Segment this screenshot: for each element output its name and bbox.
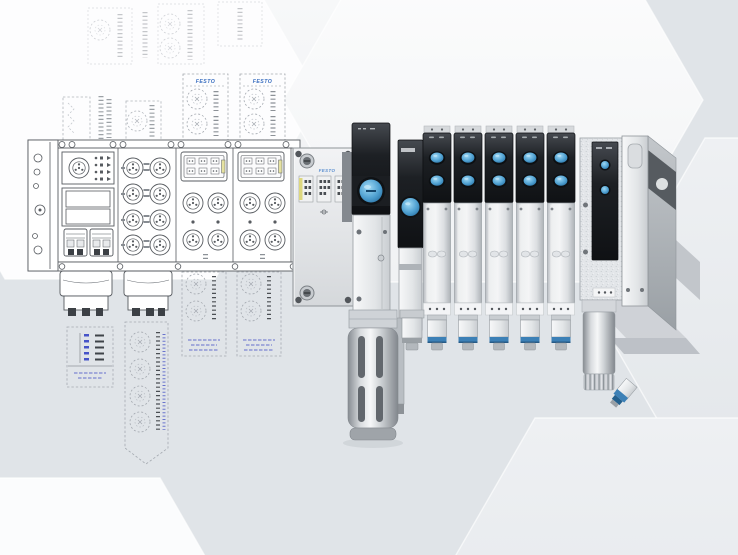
valve-slice-1: [423, 126, 451, 350]
valve-slice-4: [516, 126, 544, 350]
manual-override-knob: [402, 198, 420, 216]
festo-logo-module: FESTO: [319, 168, 336, 173]
illustration-canvas: FESTO FESTO: [0, 0, 738, 555]
override-button: [601, 161, 609, 169]
terminal-strips: [299, 176, 349, 202]
valve-slice-2: [454, 126, 482, 350]
hex-tile: [0, 478, 265, 555]
cad-m12-connector: [69, 158, 89, 178]
valve-slice-row: [423, 126, 575, 350]
phantom-option-module-1: [182, 272, 226, 356]
hex-tile: [430, 418, 738, 555]
silencer-large: [348, 310, 398, 440]
cad-plug-housing-1: [60, 271, 112, 316]
festo-logo-text: FESTO: [253, 79, 272, 85]
phantom-connector-strip: [125, 322, 168, 464]
solenoid-valve-2: [398, 140, 423, 330]
festo-logo-text: FESTO: [196, 79, 215, 85]
phantom-option-module-2: [237, 272, 281, 356]
cad-end-plate-left: [28, 140, 58, 271]
carrying-cutout: [628, 144, 642, 168]
valve-slice-3: [485, 126, 513, 350]
cad-plug-housing-2: [124, 271, 172, 316]
valve-terminal-illustration: FESTO FESTO: [0, 0, 738, 555]
right-module: [580, 138, 622, 300]
phantom-pinout-box: [67, 327, 113, 387]
end-plate-right: [622, 136, 676, 330]
silencer-small: [582, 300, 616, 390]
cad-fuse-holder: [90, 229, 113, 256]
silencer-large-group: [343, 310, 424, 448]
valve-slice-5: [547, 126, 575, 350]
cad-plug-connector: [238, 152, 284, 181]
override-button: [601, 186, 609, 194]
phantom-pin-marks: [84, 334, 89, 361]
cad-plug-connector: [181, 152, 227, 181]
cad-fuse-holder: [64, 229, 87, 256]
